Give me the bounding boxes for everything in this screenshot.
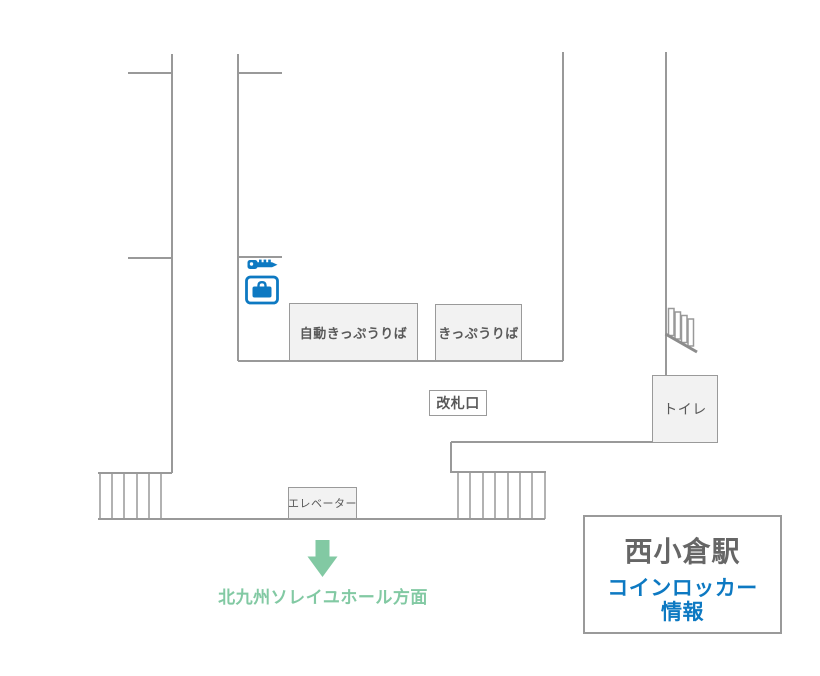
- locker-info-line1: コインロッカー: [607, 577, 758, 601]
- down-arrow-icon: [308, 540, 338, 577]
- elevator-box: エレベーター: [288, 487, 357, 519]
- ticket-machines-box: 自動きっぷうりば: [289, 303, 418, 361]
- station-floor-map: 自動きっぷうりば きっぷうりば 改札口 トイレ エレベーター 北九州ソレイユホー…: [0, 0, 820, 676]
- ticket-gate-label: 改札口: [436, 393, 480, 413]
- ticket-office-box: きっぷうりば: [435, 304, 522, 361]
- toilet-box: トイレ: [652, 375, 718, 443]
- stairs-left: [98, 473, 172, 519]
- ticket-machines-label: 自動きっぷうりば: [300, 323, 407, 342]
- locker-info-title: コインロッカー 情報: [607, 577, 758, 625]
- ticket-gate-box: 改札口: [429, 390, 487, 416]
- key-icon: [248, 260, 278, 269]
- direction-label: 北九州ソレイユホール方面: [192, 583, 454, 608]
- toilet-label: トイレ: [663, 399, 707, 419]
- ticket-office-label: きっぷうりば: [438, 323, 518, 342]
- station-name: 西小倉駅: [624, 530, 740, 570]
- coin-locker-icon: [247, 277, 278, 303]
- stairs-right: [450, 472, 546, 519]
- stairs-down-icon: [666, 309, 698, 353]
- wall-lines: [98, 52, 666, 519]
- elevator-label: エレベーター: [288, 495, 357, 511]
- legend-box: 西小倉駅 コインロッカー 情報: [583, 515, 782, 634]
- locker-info-line2: 情報: [607, 601, 758, 625]
